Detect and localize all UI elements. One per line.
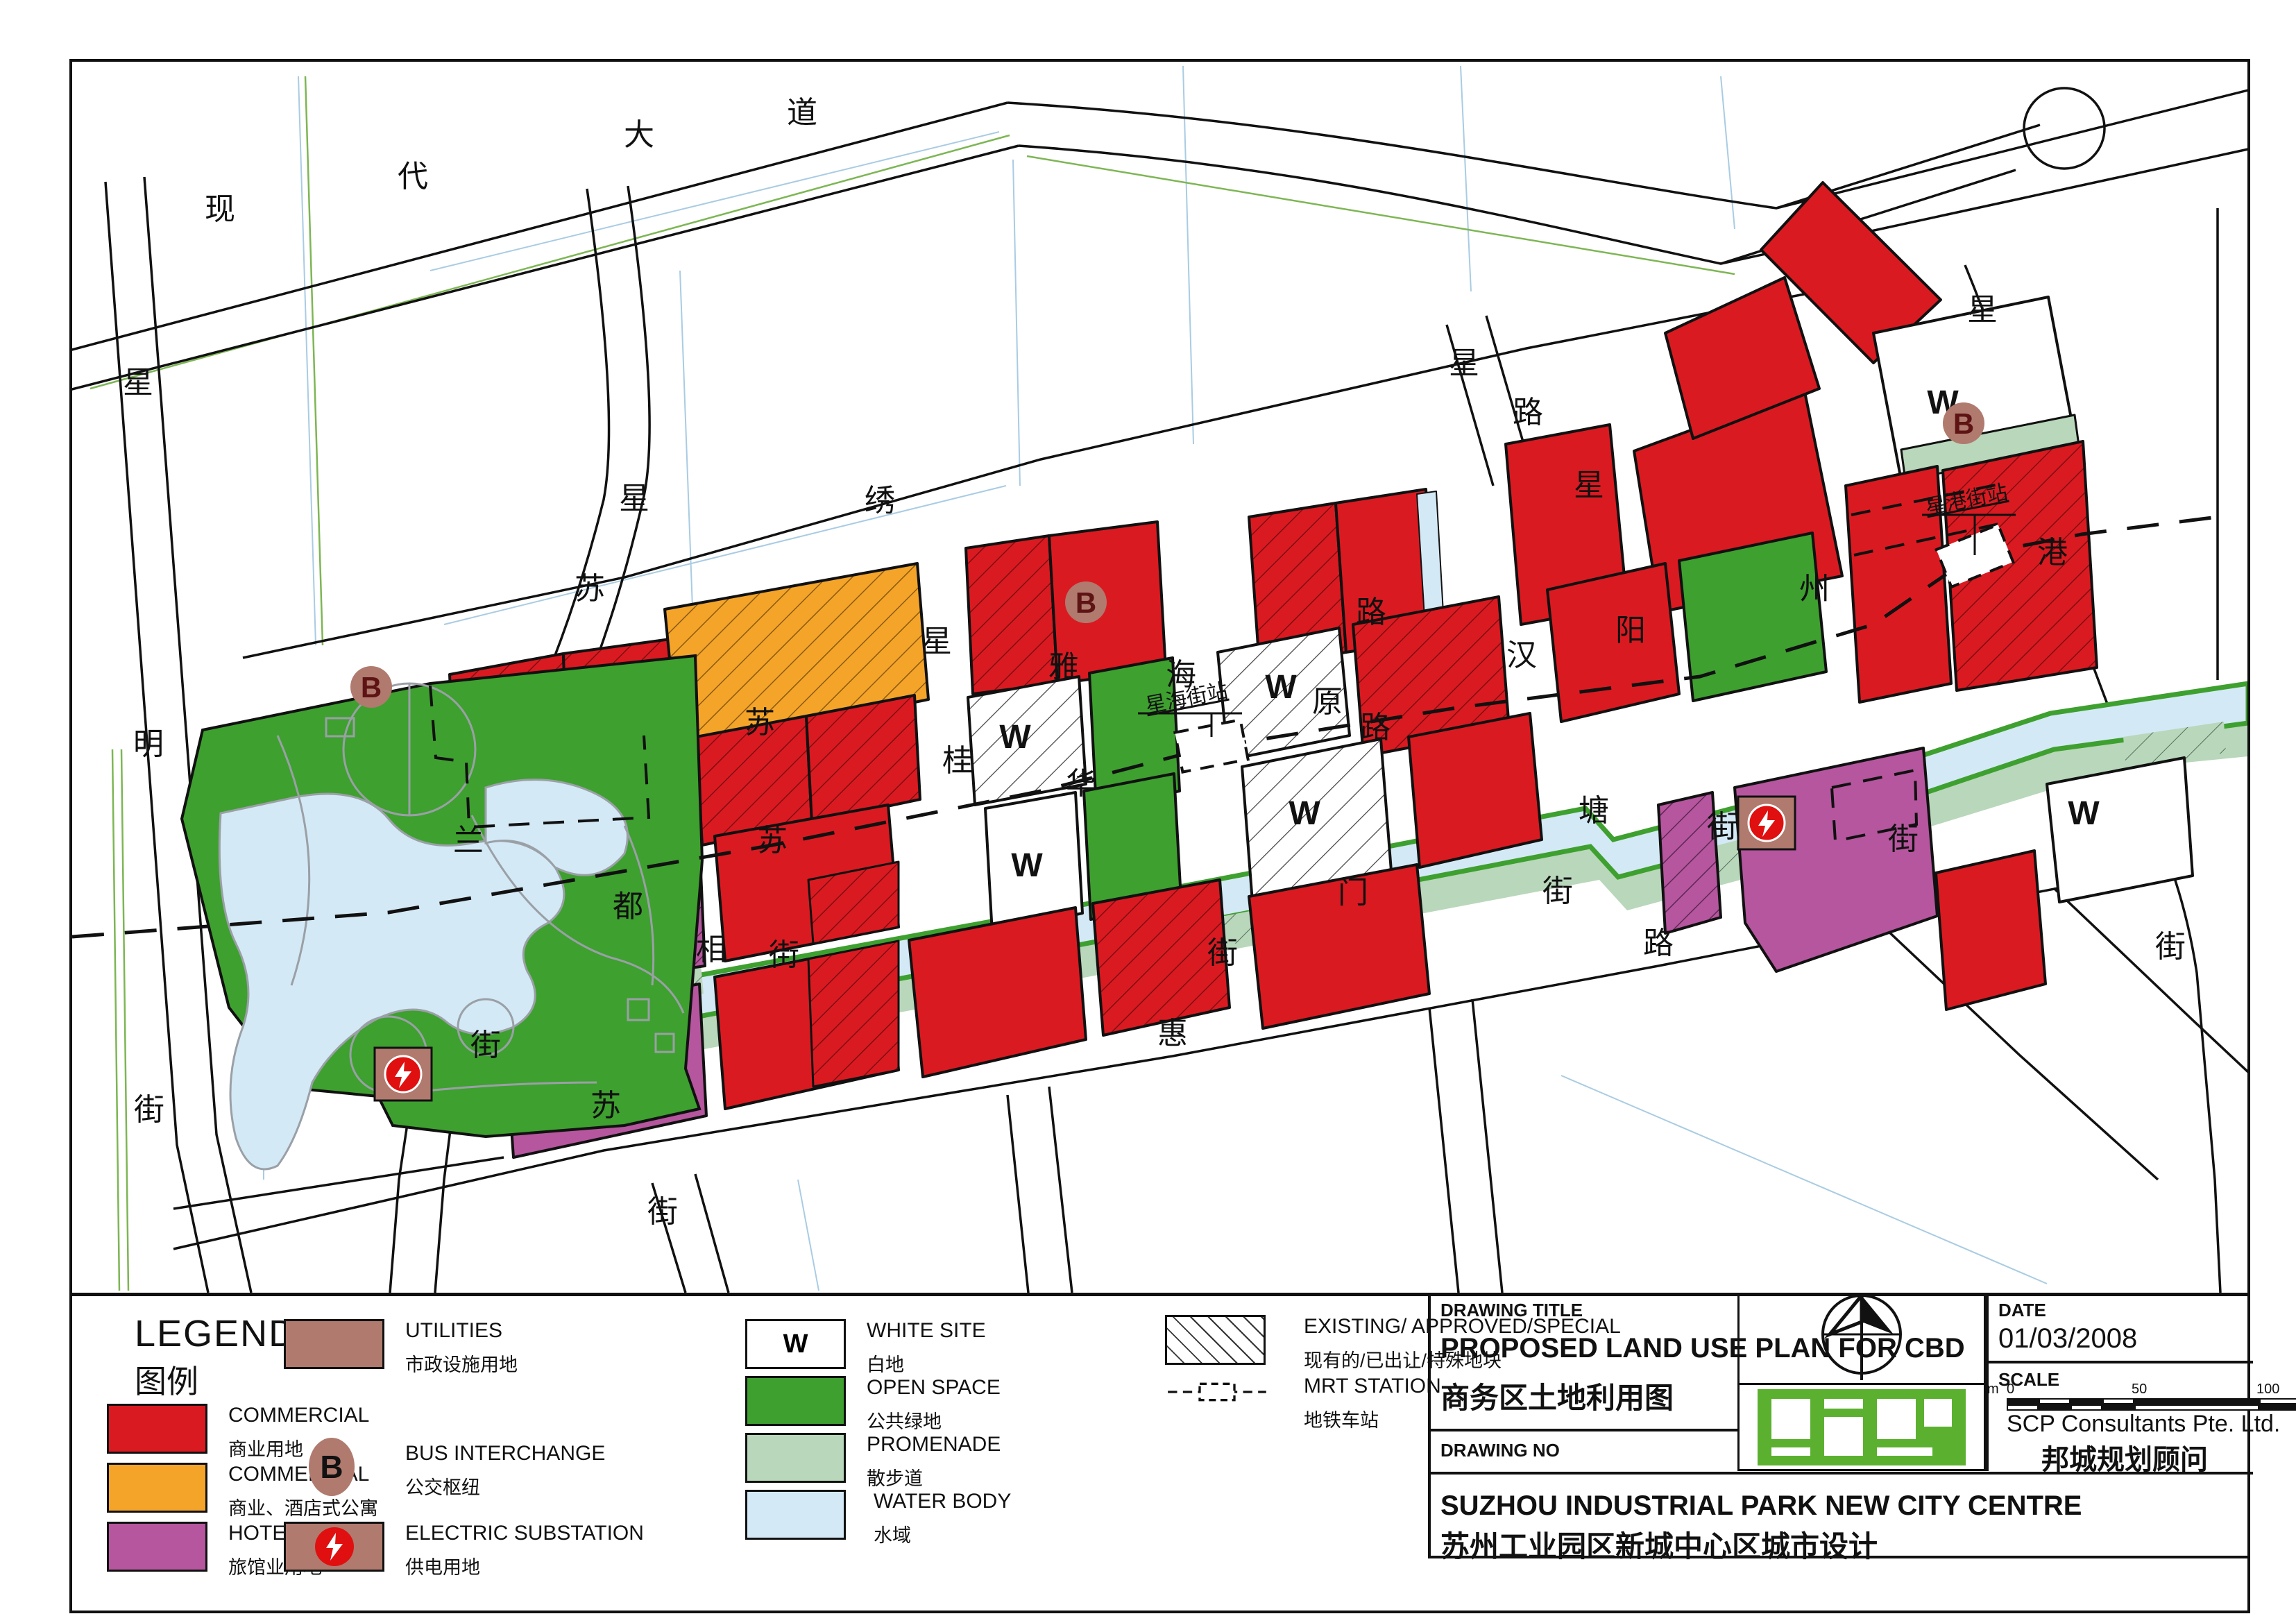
scp-logo (1758, 1389, 1966, 1465)
road-name-char: 路 (1643, 926, 1674, 960)
road-name-char: 星 (921, 624, 952, 658)
road-name-char: 现 (205, 192, 235, 226)
road-name-char: 路 (1356, 595, 1386, 629)
commercial-swatch (107, 1404, 207, 1454)
substation-symbol (284, 1522, 384, 1572)
road-name-char: 原 (1312, 685, 1343, 719)
road-name-char: 桂 (942, 744, 973, 778)
white-site-marker: W (999, 719, 1031, 756)
road-name-char: 星 (1449, 346, 1479, 380)
date-label: DATE (1998, 1300, 2046, 1321)
scp-logo-box (1737, 1383, 1986, 1471)
road-name-char: 星 (1967, 293, 1998, 327)
road-name-char: 相 (696, 933, 726, 967)
road-name-char: 苏 (590, 1089, 621, 1123)
road-name-char: 兰 (453, 824, 484, 858)
drawing-title-zh: 商务区土地利用图 (1440, 1375, 1674, 1417)
road-name-char: 苏 (575, 572, 605, 606)
white-site-symbol: W (745, 1319, 846, 1369)
title-block: DRAWING TITLE PROPOSED LAND USE PLAN FOR… (1428, 1293, 2250, 1558)
road-name-char: 华 (1066, 767, 1096, 801)
white-site-marker: W (2068, 795, 2100, 832)
drawing-no-label: DRAWING NO (1440, 1440, 1560, 1461)
road-name-char: 路 (1360, 711, 1391, 745)
white-site-marker: W (1289, 795, 1320, 832)
hotel-swatch (107, 1522, 207, 1572)
firm-name-zh: 邦城规划顾问 (2041, 1437, 2208, 1477)
road-name-char: 街 (647, 1195, 678, 1229)
existing-hatch-symbol (1165, 1315, 1266, 1365)
drawing-title-label: DRAWING TITLE (1440, 1300, 1583, 1321)
road-name-char: 明 (133, 727, 164, 761)
bus-interchange-symbol: B (309, 1438, 355, 1496)
road-name-char: 街 (2155, 930, 2186, 964)
road-name-char: 苏 (745, 706, 775, 740)
road-name-char: 星 (123, 366, 153, 400)
road-name-char: 街 (134, 1093, 164, 1127)
road-name-char: 州 (1799, 572, 1830, 606)
legend-title-zh: 图例 (135, 1357, 198, 1402)
bus-interchange-marker: B (1075, 586, 1096, 619)
lightning-icon (315, 1527, 354, 1566)
road-name-char: 苏 (757, 824, 788, 858)
road-name-char: 星 (619, 482, 649, 516)
water-body-swatch (745, 1490, 846, 1540)
road-name-char: 街 (1207, 936, 1238, 970)
road-name-char: 星 (1574, 468, 1604, 502)
north-arrow-icon (1740, 1293, 1984, 1380)
bus-interchange-marker: B (1953, 407, 1974, 440)
open-space-swatch (745, 1376, 846, 1426)
road-name-char: 路 (1513, 396, 1543, 430)
project-title-zh: 苏州工业园区新城中心区城市设计 (1440, 1523, 1878, 1565)
road-name-char: 惠 (1157, 1017, 1188, 1051)
road-name-char: 汉 (1506, 638, 1537, 672)
north-arrow-box (1737, 1293, 1986, 1383)
mrt-station-symbol (1165, 1382, 1269, 1402)
road-name-char: 塘 (1579, 794, 1609, 828)
road-name-char: 都 (613, 890, 643, 924)
road-name-char: 街 (1888, 822, 1919, 856)
road-name-char: 代 (398, 160, 428, 194)
road-name-char: 雅 (1048, 650, 1079, 684)
utilities-swatch (284, 1319, 384, 1369)
road-name-char: 门 (1338, 876, 1368, 910)
date-value: 01/03/2008 (1998, 1323, 2137, 1354)
white-site-marker: W (1265, 669, 1297, 706)
road-name-char: 街 (1707, 810, 1737, 844)
road-name-char: 道 (787, 96, 817, 130)
drawing-sheet: 现代大道星明街星兰街苏绣路苏雅路星桂海街苏华原路星汉街星阳街州塘街星港街都相街惠… (0, 0, 2296, 1623)
road-name-char: 港 (2037, 536, 2068, 570)
firm-name-en: SCP Consultants Pte. Ltd. (2007, 1411, 2280, 1438)
road-name-char: 绣 (865, 484, 895, 518)
white-site-marker: W (1011, 847, 1043, 884)
legend-title: LEGEND (135, 1312, 297, 1355)
road-name-char: 阳 (1615, 613, 1646, 647)
road-name-char: 街 (470, 1028, 501, 1062)
project-title-en: SUZHOU INDUSTRIAL PARK NEW CITY CENTRE (1440, 1490, 2082, 1522)
road-name-char: 街 (1542, 874, 1573, 908)
road-name-char: 大 (624, 118, 654, 152)
bus-interchange-marker: B (361, 671, 382, 704)
commercial-apartment-swatch (107, 1463, 207, 1513)
promenade-swatch (745, 1433, 846, 1483)
road-name-char: 街 (769, 938, 799, 972)
